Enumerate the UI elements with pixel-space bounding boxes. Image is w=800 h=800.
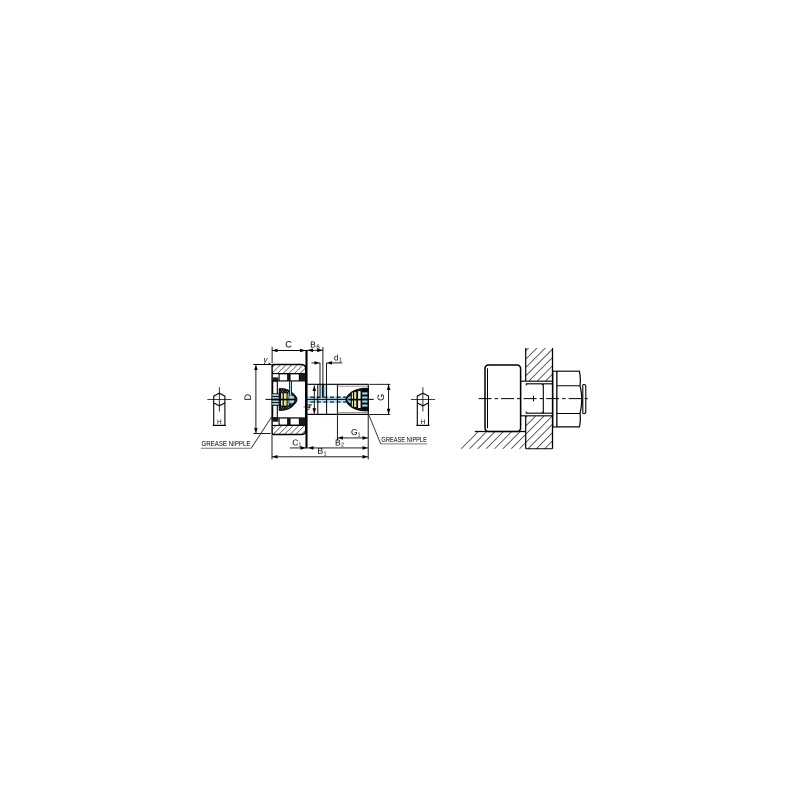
svg-text:B: B [310, 339, 316, 349]
svg-text:1: 1 [358, 432, 361, 438]
svg-text:G: G [376, 394, 386, 401]
svg-text:d: d [303, 406, 312, 410]
svg-text:H: H [217, 419, 222, 426]
svg-text:GREASE NIPPLE: GREASE NIPPLE [381, 435, 427, 444]
svg-text:2: 2 [341, 443, 344, 449]
svg-text:H: H [421, 419, 426, 426]
svg-text:C: C [285, 340, 292, 350]
svg-text:D: D [243, 393, 253, 400]
svg-text:1: 1 [339, 358, 342, 364]
svg-text:GREASE NIPPLE: GREASE NIPPLE [202, 439, 251, 448]
svg-text:1: 1 [324, 451, 327, 457]
svg-text:1: 1 [298, 443, 301, 449]
